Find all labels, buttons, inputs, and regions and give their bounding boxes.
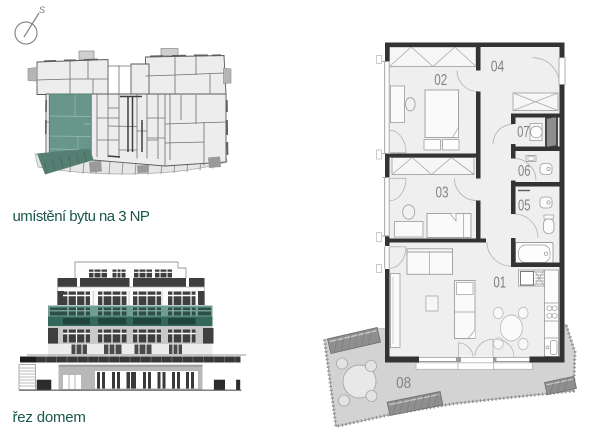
svg-text:08: 08 bbox=[396, 375, 411, 392]
svg-text:04: 04 bbox=[491, 59, 505, 76]
svg-text:S: S bbox=[39, 5, 45, 15]
svg-text:řez domem: řez domem bbox=[13, 409, 86, 426]
svg-text:05: 05 bbox=[518, 198, 531, 215]
svg-text:06: 06 bbox=[518, 163, 531, 180]
svg-text:03: 03 bbox=[436, 185, 449, 202]
svg-text:07: 07 bbox=[517, 124, 530, 141]
svg-text:umístění bytu na 3 NP: umístění bytu na 3 NP bbox=[13, 208, 150, 225]
svg-text:02: 02 bbox=[434, 72, 447, 89]
svg-text:01: 01 bbox=[494, 275, 507, 292]
